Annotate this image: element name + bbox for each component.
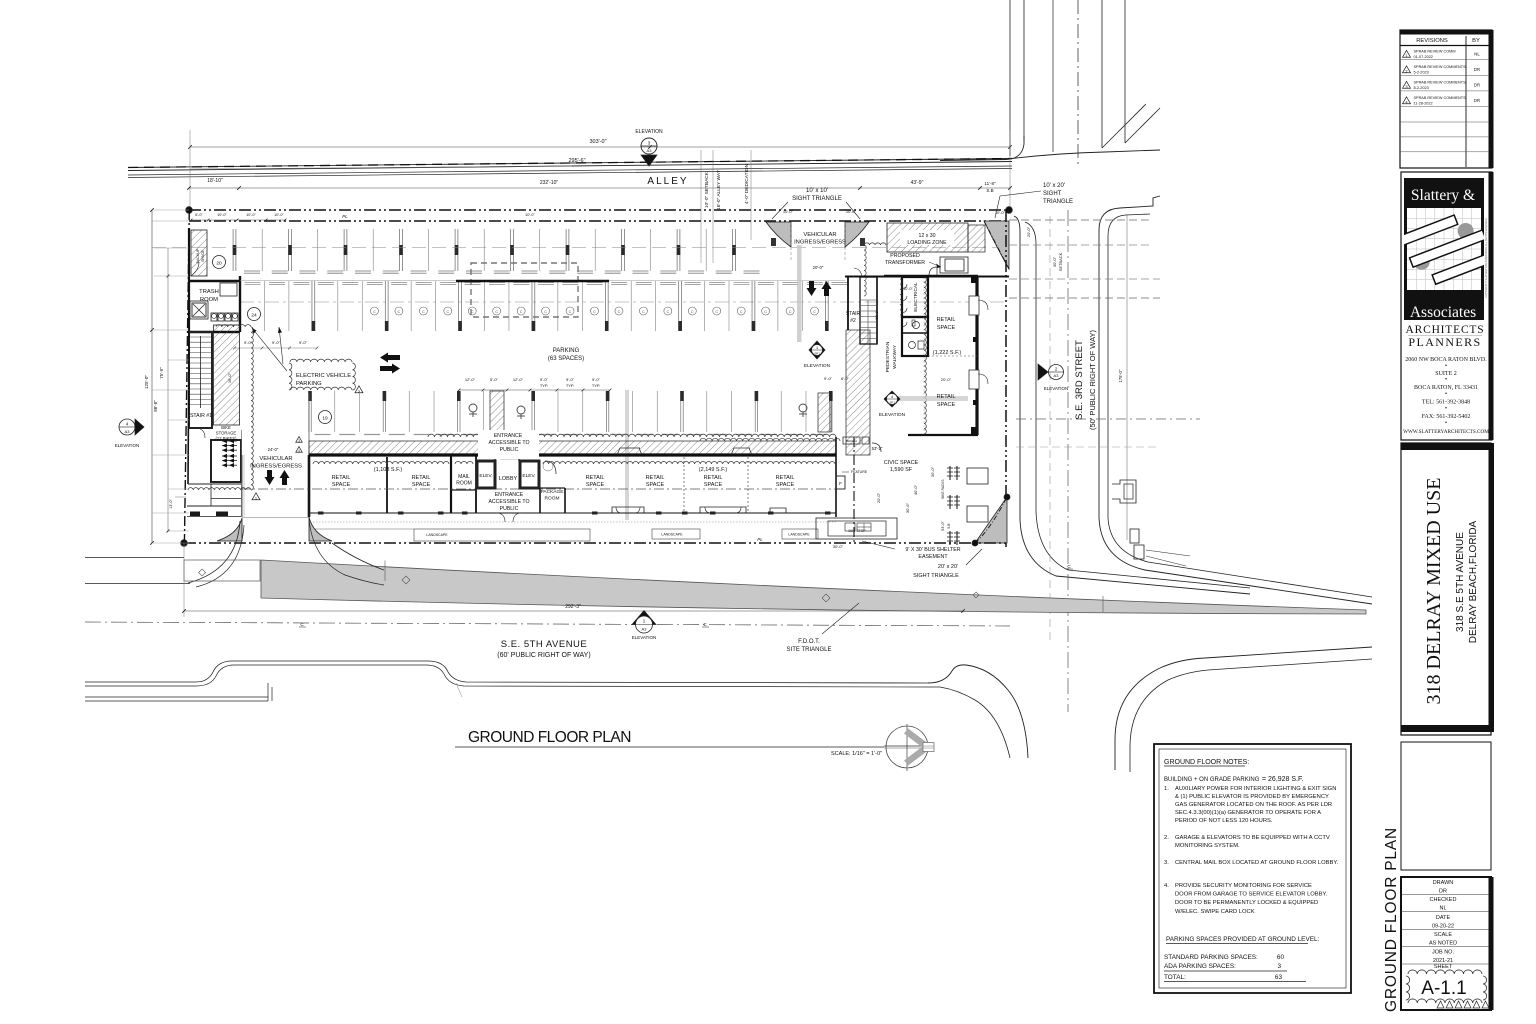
svg-text:ENTRANCE: ENTRANCE bbox=[495, 492, 524, 498]
svg-text:SIGHT TRIANGLE: SIGHT TRIANGLE bbox=[792, 196, 842, 202]
svg-text:SPRAB REVIEW COMM: SPRAB REVIEW COMM bbox=[1414, 50, 1456, 54]
svg-text:SETBACK: SETBACK bbox=[1058, 252, 1063, 271]
svg-text:BACKUP: BACKUP bbox=[196, 248, 200, 263]
svg-text:30'-1": 30'-1" bbox=[875, 310, 879, 320]
svg-text:10'-0" SETBACK: 10'-0" SETBACK bbox=[704, 171, 710, 208]
svg-text:10'-0": 10'-0" bbox=[903, 287, 913, 291]
svg-text:30'-0": 30'-0" bbox=[1052, 256, 1057, 267]
svg-text:C: C bbox=[398, 310, 401, 314]
svg-text:SPACE: SPACE bbox=[704, 482, 723, 488]
svg-text:8-2-2023: 8-2-2023 bbox=[1414, 86, 1429, 90]
svg-text:10'-0": 10'-0" bbox=[217, 213, 227, 217]
svg-text:= 26,928 S.F.: = 26,928 S.F. bbox=[1262, 776, 1304, 783]
svg-text:C: C bbox=[618, 310, 621, 314]
svg-text:C: C bbox=[789, 310, 792, 314]
svg-text:13'-0": 13'-0" bbox=[169, 499, 173, 509]
svg-text:DRAWN: DRAWN bbox=[1433, 880, 1454, 886]
svg-text:SPRAB REVIEW COMMENTS: SPRAB REVIEW COMMENTS bbox=[1414, 65, 1467, 69]
svg-text:60: 60 bbox=[1277, 954, 1285, 961]
svg-text:S.E. 5TH AVENUE: S.E. 5TH AVENUE bbox=[501, 639, 588, 650]
svg-text:43'-9": 43'-9" bbox=[911, 180, 924, 186]
svg-text:TYP.: TYP. bbox=[540, 383, 548, 388]
svg-text:ELEVATION: ELEVATION bbox=[115, 443, 140, 448]
svg-text:PERIOD OF NOT LESS 120 HOURS.: PERIOD OF NOT LESS 120 HOURS. bbox=[1175, 818, 1273, 824]
svg-text:ELEVATION: ELEVATION bbox=[879, 412, 906, 418]
svg-text:C: C bbox=[740, 310, 743, 314]
svg-text:BIKE RACKS: BIKE RACKS bbox=[941, 479, 945, 498]
svg-text:10'-0": 10'-0" bbox=[274, 213, 284, 217]
svg-text:AS NOTED: AS NOTED bbox=[1429, 941, 1457, 947]
svg-text:09-20-22: 09-20-22 bbox=[1432, 924, 1454, 930]
svg-text:ACCESSIBLE TO: ACCESSIBLE TO bbox=[488, 440, 529, 446]
svg-text:1: 1 bbox=[816, 346, 818, 350]
svg-text:A3: A3 bbox=[642, 627, 648, 632]
svg-text:SPACE: SPACE bbox=[646, 482, 665, 488]
svg-text:PARKING: PARKING bbox=[553, 348, 580, 354]
svg-text:4: 4 bbox=[126, 422, 129, 427]
svg-text:ELEV.: ELEV. bbox=[522, 473, 535, 479]
svg-text:19: 19 bbox=[322, 416, 328, 422]
svg-text:C: C bbox=[813, 310, 816, 314]
svg-text:SPACE: SPACE bbox=[412, 482, 431, 488]
svg-text:PL: PL bbox=[342, 214, 348, 219]
svg-text:20'-0": 20'-0" bbox=[941, 377, 952, 382]
svg-text:NL: NL bbox=[1474, 52, 1480, 57]
svg-text:C: C bbox=[422, 310, 425, 314]
svg-text:DR: DR bbox=[1474, 83, 1480, 88]
svg-text:LOBBY: LOBBY bbox=[499, 476, 518, 482]
svg-text:WALKWAY: WALKWAY bbox=[892, 344, 898, 369]
svg-text:C: C bbox=[520, 310, 523, 314]
svg-text:PROPOSED: PROPOSED bbox=[890, 253, 920, 259]
svg-text:1,590 SF: 1,590 SF bbox=[890, 467, 913, 473]
svg-text:TRIANGLE: TRIANGLE bbox=[1043, 199, 1073, 205]
svg-text:LOADING ZONE: LOADING ZONE bbox=[907, 240, 947, 246]
svg-text:•: • bbox=[1445, 420, 1447, 427]
svg-text:3: 3 bbox=[1277, 963, 1281, 970]
svg-text:CHECKED: CHECKED bbox=[1430, 897, 1457, 903]
svg-text:A3: A3 bbox=[125, 429, 131, 434]
svg-text:REVISIONS: REVISIONS bbox=[1416, 38, 1448, 44]
svg-text:ELECTRIC VEHICLE: ELECTRIC VEHICLE bbox=[296, 373, 351, 379]
svg-text:SEC.4.3.3(00)(1)(a) GENERATOR: SEC.4.3.3(00)(1)(a) GENERATOR TO OPERATE… bbox=[1175, 810, 1321, 816]
svg-text:PUBLIC: PUBLIC bbox=[500, 447, 519, 453]
svg-text:9' X 30' BUS SHELTER: 9' X 30' BUS SHELTER bbox=[905, 547, 960, 553]
svg-text:6'-0": 6'-0" bbox=[841, 376, 850, 381]
svg-text:4: 4 bbox=[891, 395, 893, 399]
svg-text:SCALE: SCALE bbox=[1434, 932, 1452, 938]
svg-text:2: 2 bbox=[1055, 367, 1058, 372]
svg-text:RETAIL: RETAIL bbox=[646, 475, 665, 481]
svg-text:20'-0": 20'-0" bbox=[1026, 226, 1031, 237]
svg-text:•: • bbox=[1445, 405, 1447, 412]
svg-text:75'-9": 75'-9" bbox=[159, 367, 164, 379]
svg-text:VEHICULAR: VEHICULAR bbox=[259, 456, 292, 462]
svg-text:PUBLIC: PUBLIC bbox=[500, 506, 519, 512]
svg-text:GROUND FLOOR PLAN: GROUND FLOOR PLAN bbox=[1383, 827, 1400, 1012]
svg-text:5'-0": 5'-0" bbox=[490, 377, 499, 382]
svg-text:292'-3": 292'-3" bbox=[565, 604, 581, 610]
svg-text:& (1) PUBLIC ELEVATOR IS PROVI: & (1) PUBLIC ELEVATOR IS PROVIDED BY EME… bbox=[1175, 794, 1329, 800]
svg-text:GAS GENERATOR LOCATED ON THE R: GAS GENERATOR LOCATED ON THE ROOF. AS PE… bbox=[1175, 802, 1332, 808]
svg-text:PLANNERS: PLANNERS bbox=[1408, 335, 1481, 349]
svg-text:30'-0": 30'-0" bbox=[930, 466, 935, 477]
svg-text:3.: 3. bbox=[1164, 860, 1169, 866]
svg-text:•: • bbox=[1445, 391, 1447, 398]
svg-text:11-28-2022: 11-28-2022 bbox=[1414, 102, 1433, 106]
svg-text:C: C bbox=[764, 310, 767, 314]
svg-text:PACKAGE: PACKAGE bbox=[541, 489, 564, 495]
svg-text:SITE TRIANGLE: SITE TRIANGLE bbox=[787, 647, 832, 653]
svg-text:RETAIL: RETAIL bbox=[586, 475, 605, 481]
svg-text:175'-0": 175'-0" bbox=[1118, 369, 1123, 383]
svg-text:SPACE: SPACE bbox=[332, 482, 351, 488]
svg-text:(2,149 S.F.): (2,149 S.F.) bbox=[699, 467, 728, 473]
svg-text:SIGHT: SIGHT bbox=[1043, 191, 1062, 197]
svg-text:DELRAY BEACH,FLORIDA: DELRAY BEACH,FLORIDA bbox=[1468, 520, 1479, 643]
svg-text:30'-6": 30'-6" bbox=[905, 502, 910, 513]
svg-text:C: C bbox=[642, 310, 645, 314]
svg-text:GROUND FLOOR NOTES:: GROUND FLOOR NOTES: bbox=[1164, 759, 1249, 766]
svg-text:SCALE: 1/16" = 1'-0": SCALE: 1/16" = 1'-0" bbox=[831, 751, 882, 757]
svg-text:12'-0": 12'-0" bbox=[513, 377, 524, 382]
svg-text:CENTRAL MAIL BOX LOCATED AT GR: CENTRAL MAIL BOX LOCATED AT GROUND FLOOR… bbox=[1175, 860, 1338, 866]
svg-text:93'-0": 93'-0" bbox=[941, 521, 945, 531]
svg-text:WWW.SLATTERYARCHITECTS.COM: WWW.SLATTERYARCHITECTS.COM bbox=[1403, 429, 1489, 435]
svg-text:DATE: DATE bbox=[1436, 915, 1451, 921]
svg-text:CIVIC SPACE: CIVIC SPACE bbox=[884, 460, 919, 466]
svg-text:2.: 2. bbox=[1164, 835, 1169, 841]
svg-text:ELEVATION: ELEVATION bbox=[804, 363, 831, 369]
svg-text:4: 4 bbox=[298, 449, 300, 453]
svg-text:BENCH: BENCH bbox=[846, 439, 857, 443]
svg-text:16'-0" ALLEY WAY: 16'-0" ALLEY WAY bbox=[716, 169, 722, 210]
svg-text:DOOR TO BE PERMANENTLY LOCKED: DOOR TO BE PERMANENTLY LOCKED & EQUIPPED bbox=[1175, 900, 1318, 906]
svg-text:SPRAB REVIEW COMMENTS: SPRAB REVIEW COMMENTS bbox=[1414, 81, 1467, 85]
svg-text:ELEVATION: ELEVATION bbox=[635, 129, 663, 135]
svg-text:5-2-2023: 5-2-2023 bbox=[1414, 71, 1429, 75]
svg-text:PARKING SPACES PROVIDED AT GRO: PARKING SPACES PROVIDED AT GROUND LEVEL: bbox=[1166, 936, 1320, 943]
svg-text:SPACE: SPACE bbox=[776, 482, 795, 488]
svg-text:6'-0": 6'-0" bbox=[195, 213, 203, 217]
svg-text:1.: 1. bbox=[1164, 786, 1169, 792]
svg-text:(60' PUBLIC RIGHT OF WAY): (60' PUBLIC RIGHT OF WAY) bbox=[497, 652, 590, 659]
svg-text:20: 20 bbox=[216, 261, 222, 267]
svg-text:10' x 10': 10' x 10' bbox=[806, 188, 828, 194]
svg-text:S.B: S.B bbox=[986, 188, 993, 193]
svg-text:•: • bbox=[1445, 363, 1447, 370]
svg-text:4.: 4. bbox=[1164, 883, 1169, 889]
svg-text:STORAGE: STORAGE bbox=[216, 431, 237, 436]
svg-text:C: C bbox=[446, 310, 449, 314]
svg-text:Associates: Associates bbox=[1410, 304, 1476, 321]
svg-text:RETAIL: RETAIL bbox=[332, 475, 351, 481]
svg-text:ELEVATION: ELEVATION bbox=[1044, 386, 1069, 391]
svg-text:RETAIL: RETAIL bbox=[937, 394, 956, 400]
svg-text:ADA PARKING SPACES:: ADA PARKING SPACES: bbox=[1164, 963, 1236, 970]
svg-text:88'-8": 88'-8" bbox=[153, 400, 158, 412]
svg-text:9'-0": 9'-0" bbox=[592, 377, 601, 382]
svg-text:4'-0" DEDICATION: 4'-0" DEDICATION bbox=[744, 163, 750, 204]
svg-text:20'-0": 20'-0" bbox=[813, 265, 824, 270]
svg-text:A-1.1: A-1.1 bbox=[1421, 978, 1466, 999]
svg-text:C: C bbox=[666, 310, 669, 314]
svg-text:#2: #2 bbox=[850, 318, 856, 324]
svg-text:10'-0": 10'-0" bbox=[783, 209, 794, 214]
svg-text:318 S.E 5TH AVENUE: 318 S.E 5TH AVENUE bbox=[1455, 532, 1466, 632]
svg-text:12 x 30: 12 x 30 bbox=[918, 233, 935, 239]
svg-text:18'-10": 18'-10" bbox=[207, 178, 223, 184]
svg-text:3: 3 bbox=[298, 439, 300, 443]
svg-text:ENTRANCE: ENTRANCE bbox=[494, 433, 523, 439]
svg-text:24'-0": 24'-0" bbox=[268, 447, 279, 452]
svg-text:DR: DR bbox=[1474, 67, 1480, 72]
svg-text:10'-0": 10'-0" bbox=[525, 213, 535, 217]
svg-text:12'-0": 12'-0" bbox=[465, 377, 476, 382]
svg-text:01-07-2022: 01-07-2022 bbox=[1414, 55, 1433, 59]
svg-text:(1,222 S.F.): (1,222 S.F.) bbox=[933, 350, 962, 356]
svg-text:STANDARD PARKING SPACES:: STANDARD PARKING SPACES: bbox=[1164, 954, 1258, 961]
svg-text:MONITORING SYSTEM.: MONITORING SYSTEM. bbox=[1175, 843, 1240, 849]
svg-text:SPRAB REVIEW COMMENTS: SPRAB REVIEW COMMENTS bbox=[1414, 96, 1467, 100]
svg-text:NL: NL bbox=[1439, 906, 1446, 912]
svg-text:BY: BY bbox=[1472, 38, 1480, 44]
svg-text:FEATURE: FEATURE bbox=[851, 470, 868, 474]
svg-text:C: C bbox=[703, 622, 707, 627]
svg-text:A-SP.1.2: A-SP.1.2 bbox=[887, 401, 898, 405]
svg-text:295'-6": 295'-6" bbox=[568, 158, 585, 164]
svg-text:SPACE: SPACE bbox=[201, 249, 205, 262]
svg-text:ALLEY: ALLEY bbox=[647, 176, 688, 187]
svg-text:(50' PUBLIC RIGHT OF WAY): (50' PUBLIC RIGHT OF WAY) bbox=[1088, 329, 1097, 430]
svg-text:10' x 20': 10' x 20' bbox=[1043, 183, 1065, 189]
svg-text:BIKE: BIKE bbox=[221, 425, 231, 430]
svg-text:RETAIL: RETAIL bbox=[776, 475, 795, 481]
svg-text:LANDSCAPE: LANDSCAPE bbox=[661, 533, 683, 537]
svg-text:A3: A3 bbox=[1054, 373, 1060, 378]
svg-text:INGRESS/EGRESS: INGRESS/EGRESS bbox=[794, 240, 846, 246]
svg-text:PARKING: PARKING bbox=[296, 381, 322, 387]
svg-text:TOTAL:: TOTAL: bbox=[1164, 974, 1186, 981]
svg-text:ELEV.: ELEV. bbox=[479, 473, 492, 479]
svg-text:SIGHT TRIANGLE: SIGHT TRIANGLE bbox=[913, 573, 959, 579]
svg-text:RETAIL: RETAIL bbox=[412, 475, 431, 481]
svg-text:TYP.: TYP. bbox=[592, 383, 600, 388]
svg-text:11'-8": 11'-8" bbox=[984, 181, 996, 186]
svg-text:TYP.: TYP. bbox=[566, 383, 574, 388]
svg-text:DR: DR bbox=[1474, 98, 1480, 103]
svg-text:C: C bbox=[373, 310, 376, 314]
svg-text:GARAGE & ELEVATORS TO BE EQUIP: GARAGE & ELEVATORS TO BE EQUIPPED WITH A… bbox=[1175, 835, 1330, 841]
svg-text:BUILDING + ON GRADE PARKING: BUILDING + ON GRADE PARKING bbox=[1164, 777, 1260, 783]
svg-text:9'-0": 9'-0" bbox=[824, 376, 833, 381]
svg-text:9'-0": 9'-0" bbox=[566, 377, 575, 382]
svg-text:10'-0": 10'-0" bbox=[246, 213, 256, 217]
svg-text:RETAIL: RETAIL bbox=[937, 317, 956, 323]
svg-text:F.D.O.T.: F.D.O.T. bbox=[798, 639, 820, 645]
svg-text:INGRESS/EGRESS: INGRESS/EGRESS bbox=[250, 464, 302, 470]
svg-text:JOB NO.: JOB NO. bbox=[1432, 950, 1454, 956]
svg-text:F: F bbox=[839, 481, 842, 486]
svg-text:PEDESTRIAN: PEDESTRIAN bbox=[885, 341, 891, 372]
svg-text:ROOM: ROOM bbox=[200, 297, 218, 303]
svg-text:C: C bbox=[569, 310, 572, 314]
svg-text:ACCESSIBLE TO: ACCESSIBLE TO bbox=[488, 499, 529, 505]
svg-text:Slattery &: Slattery & bbox=[1411, 187, 1475, 204]
svg-text:SPACE: SPACE bbox=[586, 482, 605, 488]
svg-text:A3: A3 bbox=[647, 148, 653, 153]
svg-text:9'-0": 9'-0" bbox=[299, 340, 308, 345]
svg-text:STAIR: STAIR bbox=[846, 311, 861, 317]
svg-text:TRASH: TRASH bbox=[199, 289, 219, 295]
svg-text:C: C bbox=[544, 310, 547, 314]
svg-text:LANDSCAPE: LANDSCAPE bbox=[426, 533, 448, 537]
svg-text:•: • bbox=[1445, 376, 1447, 383]
svg-text:ELEVATION: ELEVATION bbox=[632, 635, 657, 640]
svg-text:24: 24 bbox=[251, 313, 257, 319]
svg-text:16'-0": 16'-0" bbox=[227, 372, 232, 383]
svg-text:C: C bbox=[1067, 564, 1071, 569]
svg-text:C: C bbox=[715, 310, 718, 314]
svg-text:10'-0": 10'-0" bbox=[846, 209, 857, 214]
svg-text:40'-0": 40'-0" bbox=[913, 484, 918, 495]
svg-text:(63 SPACES): (63 SPACES) bbox=[548, 356, 584, 362]
svg-text:COPYRIGHT © SLATTERY AND ASSOC: COPYRIGHT © SLATTERY AND ASSOCIATES. ALL… bbox=[1485, 218, 1488, 298]
svg-text:3: 3 bbox=[648, 141, 651, 146]
svg-text:C: C bbox=[691, 310, 694, 314]
svg-text:(1,108 S.F.): (1,108 S.F.) bbox=[374, 467, 403, 473]
svg-text:5.B: 5.B bbox=[947, 523, 951, 529]
svg-text:10'-0": 10'-0" bbox=[995, 210, 1006, 215]
svg-text:SHEET: SHEET bbox=[1434, 964, 1453, 970]
svg-text:SPACE: SPACE bbox=[937, 325, 956, 331]
svg-text:318 DELRAY MIXED USE: 318 DELRAY MIXED USE bbox=[1423, 478, 1445, 705]
svg-text:C: C bbox=[593, 310, 596, 314]
svg-text:MAIL: MAIL bbox=[458, 474, 470, 480]
svg-text:20' x 20': 20' x 20' bbox=[938, 564, 958, 570]
svg-text:STAIR #1: STAIR #1 bbox=[190, 413, 212, 419]
svg-text:SPACE: SPACE bbox=[937, 402, 956, 408]
svg-text:9'-0": 9'-0" bbox=[540, 377, 549, 382]
svg-text:RETAIL: RETAIL bbox=[704, 475, 723, 481]
svg-text:EASEMENT: EASEMENT bbox=[918, 554, 948, 560]
svg-text:303'-0": 303'-0" bbox=[589, 139, 606, 145]
svg-text:S.E. 3RD STREET: S.E. 3RD STREET bbox=[1074, 340, 1085, 420]
svg-text:DR: DR bbox=[1439, 889, 1447, 895]
svg-text:9'-0": 9'-0" bbox=[272, 340, 281, 345]
svg-text:232'-10": 232'-10" bbox=[540, 180, 559, 186]
svg-text:63: 63 bbox=[1275, 974, 1283, 981]
svg-text:ELECTRICAL: ELECTRICAL bbox=[913, 282, 919, 312]
svg-text:TRANSFORMER: TRANSFORMER bbox=[885, 260, 925, 266]
svg-text:125'-0": 125'-0" bbox=[144, 375, 149, 389]
svg-text:AUXILIARY POWER FOR INTERIOR L: AUXILIARY POWER FOR INTERIOR LIGHTING & … bbox=[1175, 786, 1336, 792]
svg-text:ROOM: ROOM bbox=[545, 496, 560, 502]
svg-text:VEHICULAR: VEHICULAR bbox=[803, 232, 836, 238]
svg-text:PROVIDE SECURITY MONITORING FO: PROVIDE SECURITY MONITORING FOR SERVICE bbox=[1175, 883, 1312, 889]
svg-text:20'-0": 20'-0" bbox=[876, 492, 881, 503]
svg-text:ROOM: ROOM bbox=[456, 481, 472, 487]
svg-text:PL: PL bbox=[757, 537, 763, 542]
svg-text:A-SP.1.2: A-SP.1.2 bbox=[812, 352, 823, 356]
svg-text:LANDSCAPE: LANDSCAPE bbox=[788, 533, 810, 537]
svg-text:GROUND FLOOR PLAN: GROUND FLOOR PLAN bbox=[468, 729, 631, 746]
svg-text:W/ELEC. SWIPE CARD LOCK: W/ELEC. SWIPE CARD LOCK bbox=[1175, 909, 1255, 915]
svg-text:DOOR FROM GARAGE TO SERVICE EL: DOOR FROM GARAGE TO SERVICE ELEVATOR LOB… bbox=[1175, 892, 1328, 898]
svg-text:C: C bbox=[495, 310, 498, 314]
svg-text:30'-0": 30'-0" bbox=[833, 544, 844, 549]
